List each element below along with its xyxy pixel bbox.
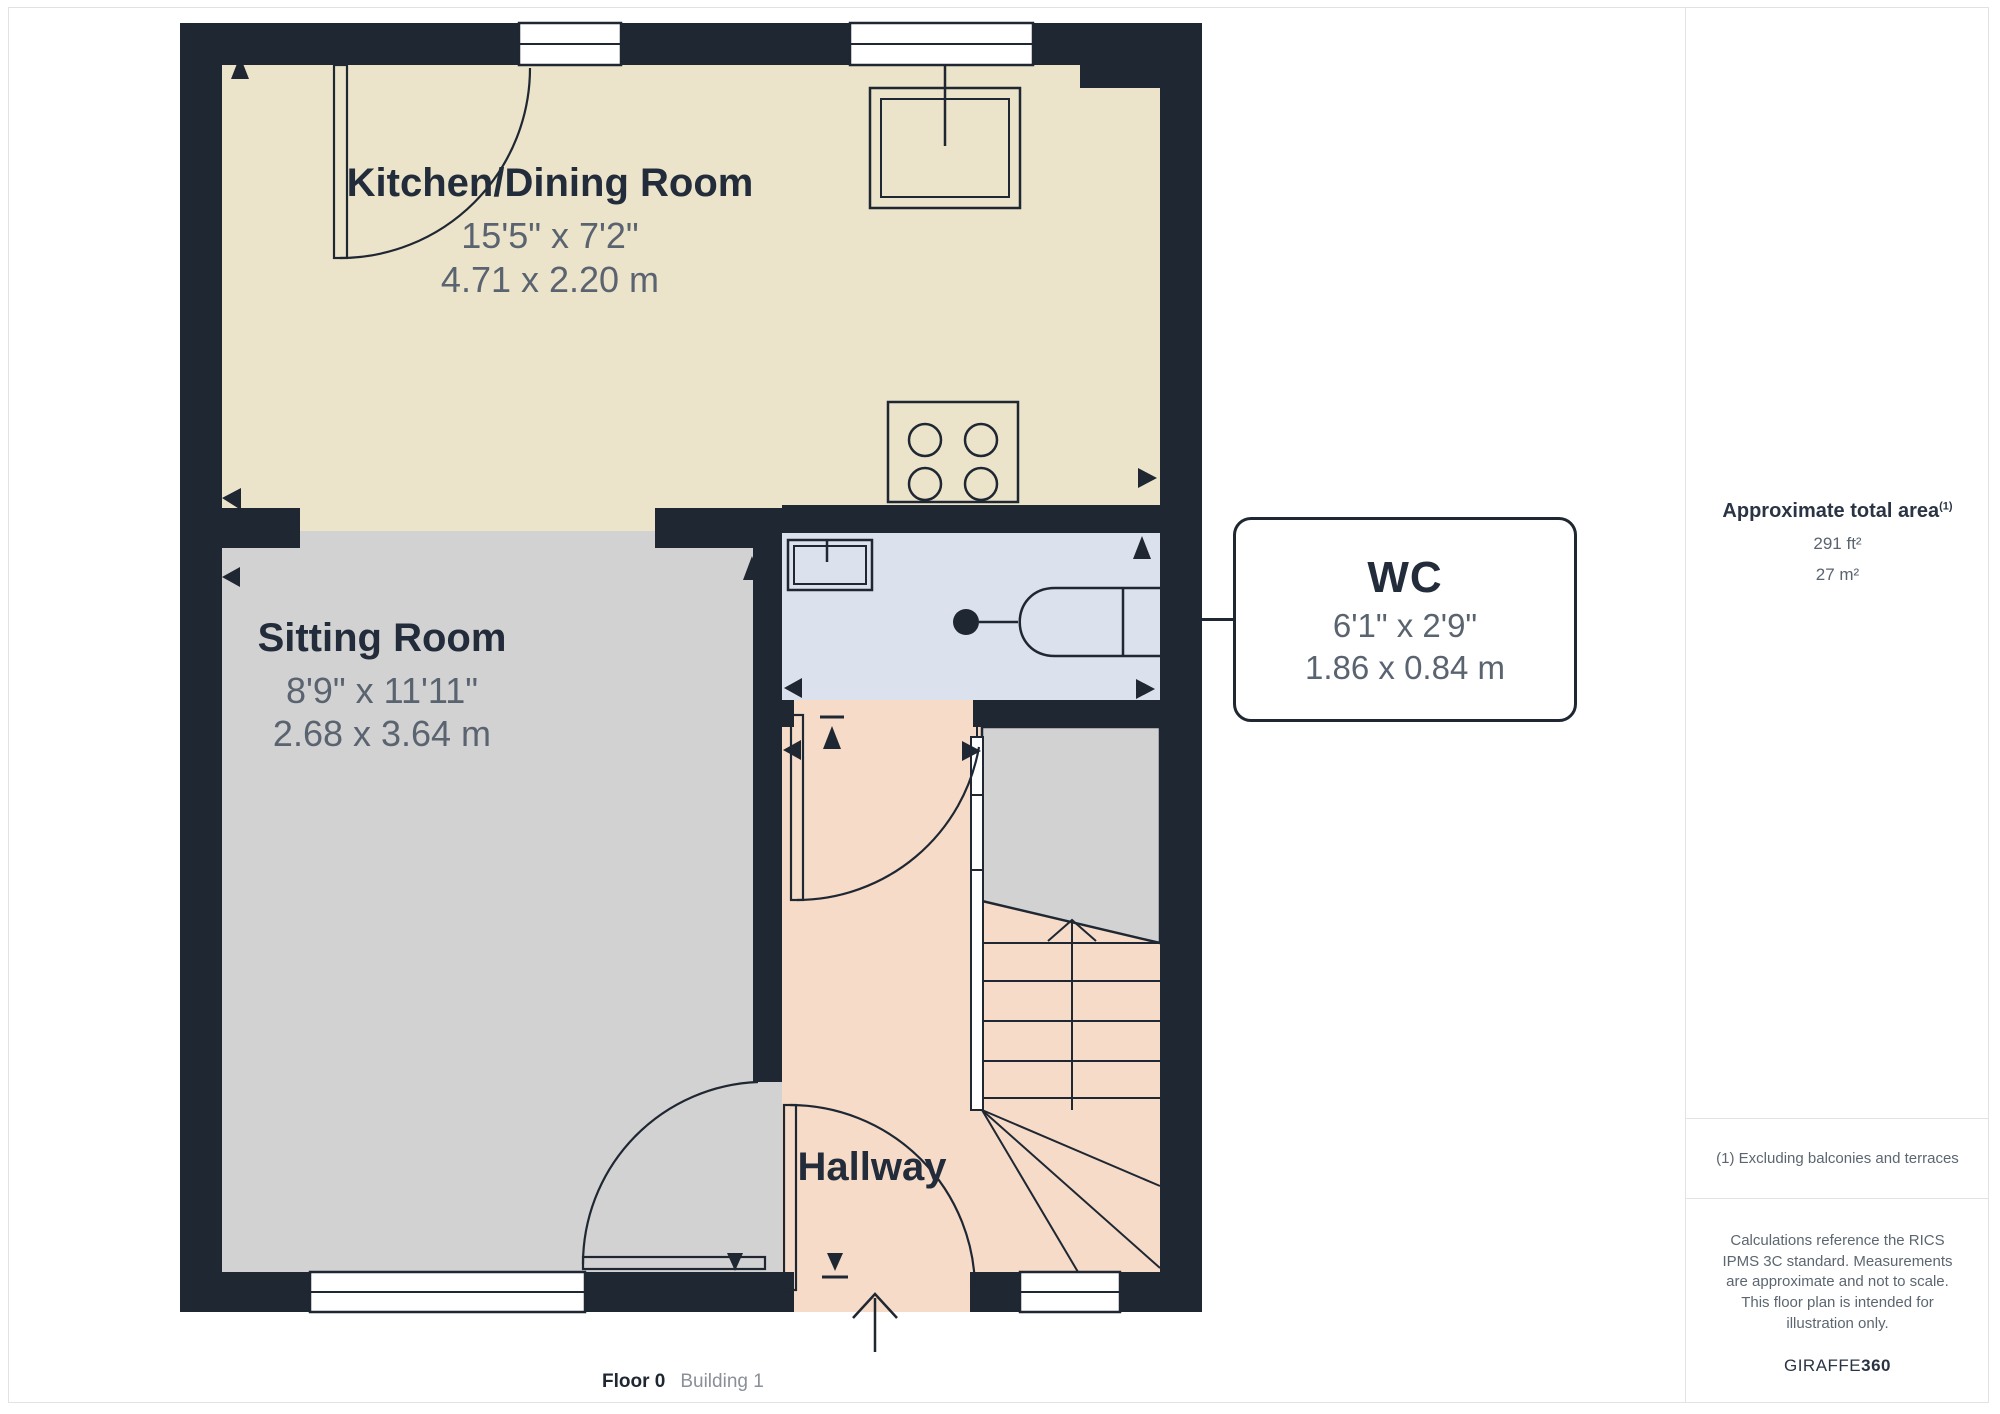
wall-wc-top (782, 505, 1160, 533)
total-area-title: Approximate total area(1) (1686, 500, 1989, 523)
wc-callout: WC 6'1" x 2'9" 1.86 x 0.84 m (1233, 517, 1577, 722)
kitchen-label: Kitchen/Dining Room (347, 161, 754, 205)
footnote-ref: (1) (1939, 500, 1952, 512)
wall-notch-topright (1080, 65, 1160, 88)
stair-banister (971, 737, 983, 1110)
giraffe360-logo: GIRAFFE360 (1686, 1356, 1989, 1376)
wall-sitting-hall-divider (753, 508, 782, 1082)
sitting-room-dims-imperial: 8'9" x 11'11" (286, 670, 478, 711)
wall-mid-left-stub (180, 508, 300, 548)
hallway-label: Hallway (798, 1145, 948, 1189)
total-area-ft: 291 ft² (1686, 534, 1989, 554)
window-stairs-bottom (1020, 1272, 1120, 1312)
wall-right (1160, 23, 1202, 1312)
floorplan-page: Kitchen/Dining Room 15'5" x 7'2" 4.71 x … (0, 0, 2000, 1414)
toilet-cistern-knob (953, 609, 979, 635)
disclaimer-section: Calculations reference the RICS IPMS 3C … (1686, 1198, 1989, 1403)
window-kitchen-right (850, 23, 1033, 65)
disclaimer-text: Calculations reference the RICS IPMS 3C … (1721, 1231, 1955, 1334)
kitchen-dims-imperial: 15'5" x 7'2" (461, 215, 638, 256)
floor-number: Floor 0 (602, 1371, 665, 1393)
wc-callout-leader-line (1202, 618, 1234, 621)
window-kitchen-left (519, 23, 621, 65)
sitting-room-dims-metric: 2.68 x 3.64 m (273, 713, 491, 754)
footnote-section: (1) Excluding balconies and terraces (1686, 1118, 1989, 1198)
kitchen-opening-threshold (300, 508, 655, 531)
window-sitting-bottom (310, 1272, 585, 1312)
wall-wc-hall-stub (782, 700, 794, 727)
floor-caption: Floor 0 Building 1 (602, 1371, 764, 1393)
sitting-door-threshold (753, 1082, 782, 1272)
total-area-section: Approximate total area(1) 291 ft² 27 m² (1686, 8, 1989, 1118)
total-area-m: 27 m² (1686, 565, 1989, 585)
building-number: Building 1 (680, 1371, 763, 1393)
wall-top (180, 23, 1202, 65)
wc-dims-metric: 1.86 x 0.84 m (1305, 649, 1505, 687)
wc-label: WC (1367, 553, 1442, 603)
wall-wc-stairs (973, 700, 1160, 727)
front-door-threshold (794, 1272, 970, 1312)
wall-left (180, 23, 222, 1312)
sitting-room-label: Sitting Room (258, 616, 507, 660)
info-sidebar: Approximate total area(1) 291 ft² 27 m² … (1685, 8, 1989, 1403)
kitchen-dims-metric: 4.71 x 2.20 m (441, 259, 659, 300)
wc-dims-imperial: 6'1" x 2'9" (1333, 607, 1477, 645)
footnote-text: (1) Excluding balconies and terraces (1716, 1150, 1959, 1167)
